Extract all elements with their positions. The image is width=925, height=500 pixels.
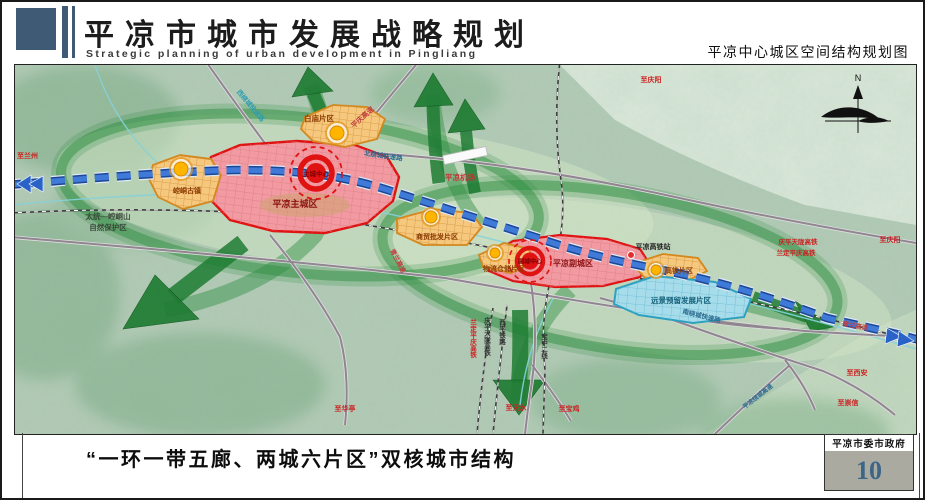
label-sub-center: 副城中心 xyxy=(518,258,542,266)
label-to-lanzhou: 至兰州 xyxy=(17,151,38,160)
footer-left-rule xyxy=(22,433,23,499)
hsr-station-marker xyxy=(628,252,635,259)
planning-document-page: 平凉市城市发展战略规划 Strategic planning of urban … xyxy=(0,0,925,500)
page-subtitle-english: Strategic planning of urban development … xyxy=(86,48,477,60)
label-to-tianshui: 至天水 xyxy=(506,403,528,412)
label-to-baoji: 至宝鸡 xyxy=(559,404,580,413)
title-block: 平凉市委市政府 10 xyxy=(824,434,914,491)
planning-map: N 平凉主城区 主城中心 平凉副城区 副城中心 白庙片区 崆峒古镇 商贸批发片区… xyxy=(14,64,917,435)
label-airport: 平凉机场 xyxy=(445,172,475,182)
corridor-shaft-n1 xyxy=(433,105,439,183)
label-to-huating: 至华亭 xyxy=(335,404,356,413)
label-to-xian: 至西安 xyxy=(847,368,868,377)
label-to-qingyang-north: 至庆阳 xyxy=(641,75,662,84)
label-to-chongxin: 至崇信 xyxy=(838,398,859,407)
label-to-qingyang-east: 至庆阳 xyxy=(880,235,901,244)
label-reserved: 远景预留发展片区 xyxy=(651,295,711,305)
map-sheet-title: 平凉中心城区空间结构规划图 xyxy=(708,42,910,62)
map-caption: “一环一带五廊、两城六片区”双核城市结构 xyxy=(86,443,516,472)
header-accent-bar-thin xyxy=(72,6,75,58)
label-ldpq-hsr: 兰定平庆高铁 xyxy=(777,248,817,257)
label-nature-reserve-2: 自然保护区 xyxy=(89,222,127,232)
agency-name: 平凉市委市政府 xyxy=(825,435,913,451)
compass-n-label: N xyxy=(855,73,862,83)
label-logistics: 物流仓储片区 xyxy=(483,264,525,273)
label-hsr-station: 平凉高铁站 xyxy=(636,242,671,251)
label-baimiao: 白庙片区 xyxy=(304,113,334,123)
label-hsr-district: 高铁片区 xyxy=(665,266,693,275)
label-main-center: 主城中心 xyxy=(303,169,330,178)
label-nature-reserve-1: 太统—崆峒山 xyxy=(86,211,131,221)
label-sub-city: 平凉副城区 xyxy=(553,258,593,268)
logo-square xyxy=(16,8,56,50)
label-kongtong: 崆峒古镇 xyxy=(173,186,201,195)
label-main-city: 平凉主城区 xyxy=(272,198,317,209)
header-accent-bar xyxy=(62,6,68,58)
label-trade: 商贸批发片区 xyxy=(416,232,458,241)
label-qptl-hsr: 庆平天陇高铁 xyxy=(778,237,819,246)
footer-right-rule xyxy=(919,433,920,499)
corridor-shaft-s xyxy=(519,310,520,383)
page-number: 10 xyxy=(825,451,913,490)
